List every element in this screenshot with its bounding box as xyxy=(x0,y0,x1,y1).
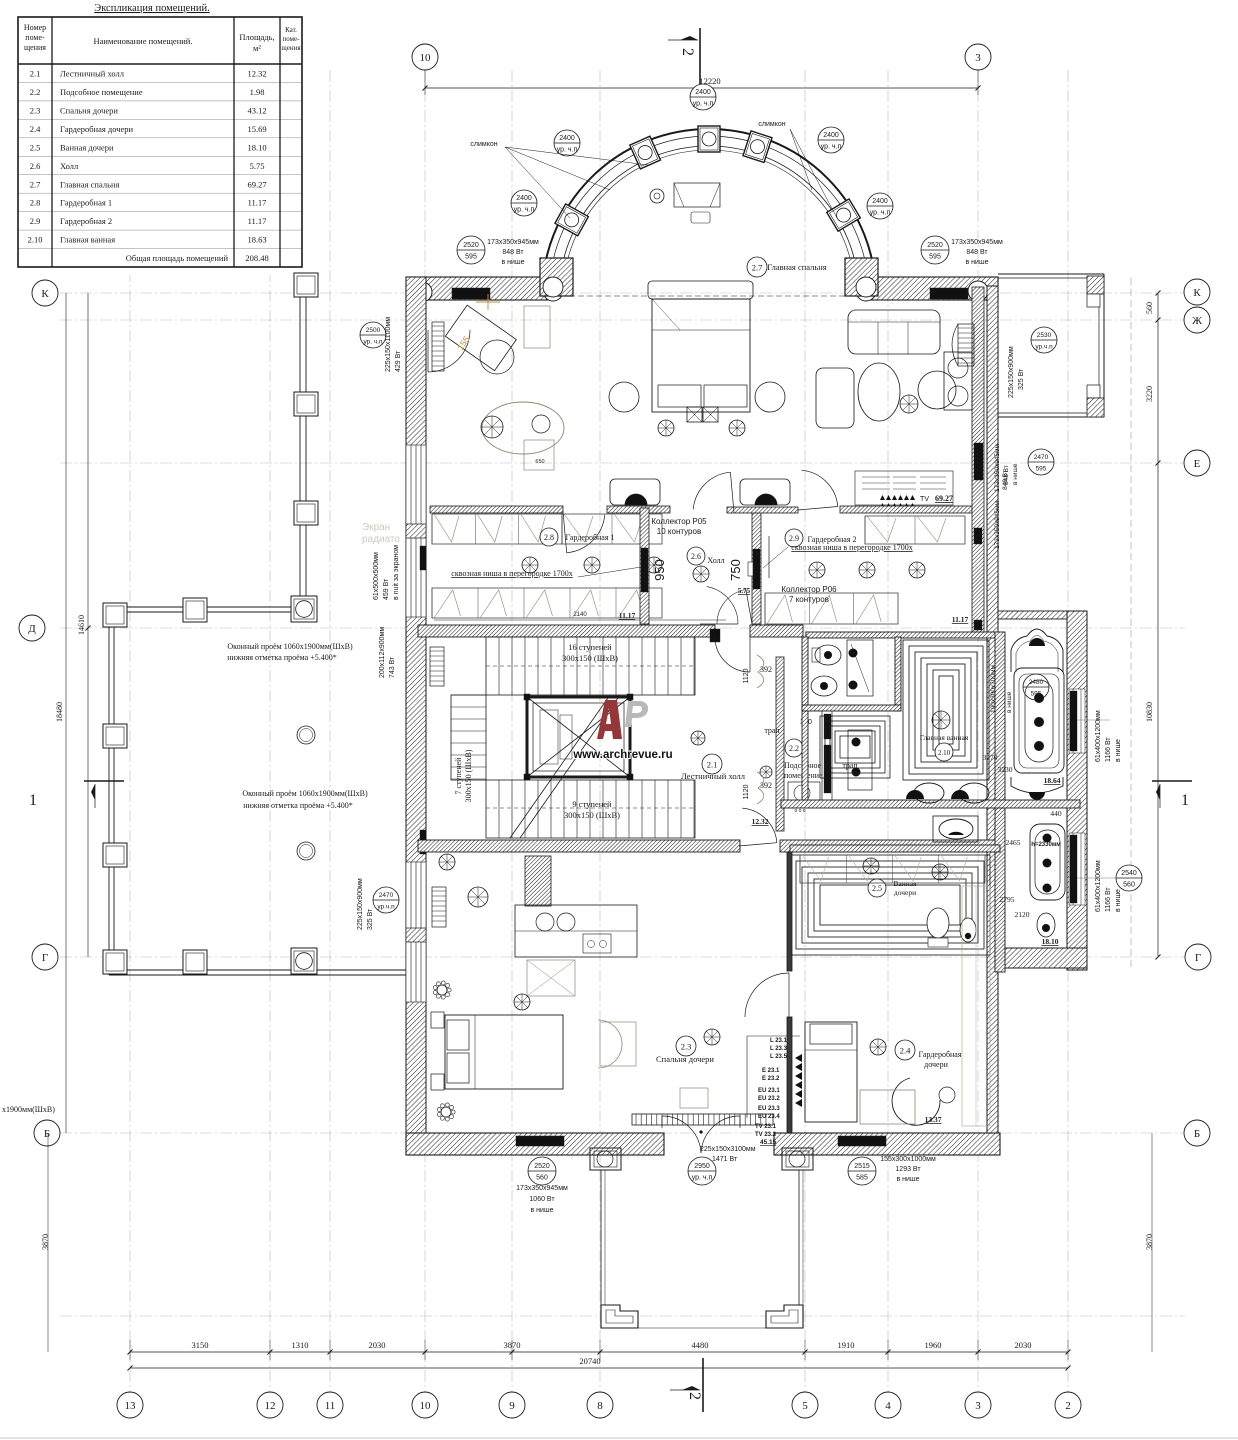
svg-text:ур.ч.п: ур.ч.п xyxy=(377,904,395,911)
svg-text:16 ступеней: 16 ступеней xyxy=(568,642,612,652)
svg-text:9: 9 xyxy=(509,1400,515,1412)
svg-text:173x350x945мм: 173x350x945мм xyxy=(516,1185,568,1192)
svg-text:1960: 1960 xyxy=(925,1340,942,1350)
svg-text:12.32: 12.32 xyxy=(752,817,769,826)
svg-text:Холл: Холл xyxy=(707,556,724,565)
svg-text:в нише: в нише xyxy=(1006,691,1013,713)
svg-text:2.8: 2.8 xyxy=(30,198,41,208)
svg-text:2400: 2400 xyxy=(516,195,532,202)
svg-text:3870: 3870 xyxy=(41,1234,50,1250)
svg-text:2.2: 2.2 xyxy=(30,87,41,97)
svg-text:208.48: 208.48 xyxy=(245,253,268,263)
svg-text:61x400x1200мм: 61x400x1200мм xyxy=(1095,860,1102,912)
svg-text:ур. ч.п: ур. ч.п xyxy=(692,1175,713,1182)
svg-text:560: 560 xyxy=(1145,302,1154,314)
svg-text:трап: трап xyxy=(764,726,780,735)
svg-text:2.5: 2.5 xyxy=(872,884,882,893)
svg-text:Лестничный холл: Лестничный холл xyxy=(681,771,746,781)
svg-text:18.10: 18.10 xyxy=(1042,937,1059,946)
svg-text:2.6: 2.6 xyxy=(30,161,41,171)
svg-text:Площадь,: Площадь, xyxy=(239,32,274,42)
svg-text:Коллектор Р05: Коллектор Р05 xyxy=(651,517,707,526)
svg-text:13: 13 xyxy=(125,1400,137,1412)
svg-text:10 контуров: 10 контуров xyxy=(657,527,701,536)
svg-text:848 Вт: 848 Вт xyxy=(1003,465,1010,485)
svg-text:7 ступеней: 7 ступеней xyxy=(454,757,463,795)
svg-text:560: 560 xyxy=(536,1175,548,1182)
svg-text:3870: 3870 xyxy=(1145,1234,1154,1250)
svg-text:ур. ч.п: ур. ч.п xyxy=(514,207,535,214)
svg-text:2400: 2400 xyxy=(872,198,888,205)
svg-text:325 Вт: 325 Вт xyxy=(1018,368,1025,390)
svg-text:EU 23.4: EU 23.4 xyxy=(758,1114,780,1120)
svg-text:69.27: 69.27 xyxy=(247,179,266,189)
svg-text:2465: 2465 xyxy=(1006,838,1021,847)
svg-text:К: К xyxy=(41,288,49,300)
svg-text:8: 8 xyxy=(597,1400,603,1412)
svg-text:18.64: 18.64 xyxy=(1044,776,1061,785)
svg-text:в нише: в нише xyxy=(966,259,989,266)
svg-text:848 Вт: 848 Вт xyxy=(966,249,988,256)
svg-text:173x350x945мм: 173x350x945мм xyxy=(994,443,1001,492)
svg-text:Общая площадь помещений: Общая площадь помещений xyxy=(126,253,229,263)
svg-text:61x500x500мм: 61x500x500мм xyxy=(373,552,380,600)
svg-text:EU 23.2: EU 23.2 xyxy=(758,1096,780,1102)
svg-text:дочери: дочери xyxy=(894,888,916,897)
svg-text:11.17: 11.17 xyxy=(952,615,969,624)
svg-text:Главная ванная: Главная ванная xyxy=(60,235,115,245)
svg-text:Главная ванная: Главная ванная xyxy=(920,733,969,742)
svg-text:11.17: 11.17 xyxy=(248,198,267,208)
svg-text:в нише: в нише xyxy=(502,259,525,266)
svg-text:Лестничный холл: Лестничный холл xyxy=(60,69,125,79)
svg-text:2.9: 2.9 xyxy=(789,534,799,543)
svg-text:429 Вт: 429 Вт xyxy=(395,350,402,372)
svg-text:нижняя отметка проёма +5.400*: нижняя отметка проёма +5.400* xyxy=(227,653,336,662)
svg-text:43.12: 43.12 xyxy=(247,105,266,115)
svg-text:1910: 1910 xyxy=(838,1340,855,1350)
svg-text:E 23.1: E 23.1 xyxy=(762,1068,780,1074)
svg-text:1310: 1310 xyxy=(292,1340,309,1350)
svg-text:11: 11 xyxy=(325,1400,336,1412)
svg-text:2500: 2500 xyxy=(366,327,381,334)
svg-text:1.98: 1.98 xyxy=(250,87,265,97)
svg-text:848 Вт: 848 Вт xyxy=(502,249,524,256)
svg-text:459 Вт: 459 Вт xyxy=(383,578,390,600)
svg-text:585: 585 xyxy=(856,1175,868,1182)
svg-text:225x150x900мм: 225x150x900мм xyxy=(357,878,364,930)
svg-text:2030: 2030 xyxy=(369,1340,386,1350)
svg-text:Экран: Экран xyxy=(362,522,390,533)
svg-text:трап: трап xyxy=(842,761,858,770)
svg-text:2400: 2400 xyxy=(823,132,839,139)
svg-text:18.63: 18.63 xyxy=(247,235,266,245)
svg-text:в нише: в нише xyxy=(1012,463,1019,485)
svg-text:Коллектор Р06: Коллектор Р06 xyxy=(781,585,837,594)
svg-text:1060 Вт: 1060 Вт xyxy=(529,1196,555,1203)
svg-text:61x400x1200мм: 61x400x1200мм xyxy=(1095,710,1102,762)
svg-text:E 23.2: E 23.2 xyxy=(762,1076,780,1082)
svg-text:300x150 (ШхВ): 300x150 (ШхВ) xyxy=(564,810,620,820)
svg-text:EU 23.3: EU 23.3 xyxy=(758,1106,780,1112)
svg-text:18480: 18480 xyxy=(55,702,64,722)
svg-text:10: 10 xyxy=(420,1400,432,1412)
svg-text:12.32: 12.32 xyxy=(247,69,266,79)
svg-text:3: 3 xyxy=(975,1400,981,1412)
svg-text:2.9: 2.9 xyxy=(30,216,41,226)
svg-text:2470: 2470 xyxy=(379,892,394,899)
svg-text:2540: 2540 xyxy=(1121,870,1137,877)
svg-text:м²: м² xyxy=(253,43,261,53)
svg-text:в нише: в нише xyxy=(531,1207,554,1214)
svg-text:173x350x945мм: 173x350x945мм xyxy=(994,500,1001,549)
svg-text:2.3: 2.3 xyxy=(681,1042,692,1052)
svg-text:Ж: Ж xyxy=(1192,315,1202,327)
svg-text:Спальня дочери: Спальня дочери xyxy=(656,1054,714,1064)
svg-text:2520: 2520 xyxy=(534,1163,550,1170)
svg-text:155x300x1000мм: 155x300x1000мм xyxy=(880,1156,936,1163)
svg-text:5: 5 xyxy=(802,1400,808,1412)
svg-text:слимкон: слимкон xyxy=(758,121,785,128)
svg-text:2.2: 2.2 xyxy=(789,744,799,753)
svg-text:1293 Вт: 1293 Вт xyxy=(895,1166,921,1173)
svg-text:3: 3 xyxy=(975,52,981,64)
svg-text:щения: щения xyxy=(24,43,46,52)
svg-text:300x150 (ШхВ): 300x150 (ШхВ) xyxy=(464,749,473,802)
svg-text:Гардеробная 1: Гардеробная 1 xyxy=(60,198,112,208)
svg-text:392: 392 xyxy=(760,665,772,674)
svg-text:www.archrevue.ru: www.archrevue.ru xyxy=(572,749,672,761)
svg-text:Ванная дочери: Ванная дочери xyxy=(60,142,114,152)
svg-text:2470: 2470 xyxy=(1034,454,1049,461)
svg-text:Наименование помещений.: Наименование помещений. xyxy=(94,36,193,46)
svg-text:595: 595 xyxy=(929,254,941,261)
svg-text:12: 12 xyxy=(265,1400,276,1412)
svg-text:2.3: 2.3 xyxy=(30,105,41,115)
svg-text:Кат.: Кат. xyxy=(285,26,297,34)
svg-text:2520: 2520 xyxy=(927,242,943,249)
svg-text:20740: 20740 xyxy=(579,1356,600,1366)
svg-text:Б: Б xyxy=(1194,1128,1200,1140)
svg-text:173x350x945мм: 173x350x945мм xyxy=(487,239,539,246)
svg-text:в нише: в нише xyxy=(1115,739,1122,762)
svg-text:2: 2 xyxy=(679,48,696,56)
svg-text:Б: Б xyxy=(44,1128,50,1140)
svg-text:Холл: Холл xyxy=(60,161,79,171)
svg-text:3150: 3150 xyxy=(192,1340,209,1350)
svg-text:200x112x900мм: 200x112x900мм xyxy=(379,627,386,678)
svg-text:13.37: 13.37 xyxy=(925,1115,942,1124)
svg-text:Подсобное помещение: Подсобное помещение xyxy=(60,87,143,97)
svg-text:2400: 2400 xyxy=(559,135,575,142)
svg-text:в нише: в нише xyxy=(897,1176,920,1183)
svg-text:11.17: 11.17 xyxy=(248,216,267,226)
svg-text:2120: 2120 xyxy=(1015,910,1030,919)
svg-text:Г: Г xyxy=(1195,952,1201,964)
svg-text:11.17: 11.17 xyxy=(619,611,636,620)
svg-text:440: 440 xyxy=(1050,809,1062,818)
svg-text:поме-: поме- xyxy=(283,35,301,43)
svg-text:Главная спальня: Главная спальня xyxy=(767,262,826,272)
svg-text:радиато: радиато xyxy=(362,534,400,545)
svg-text:45.15: 45.15 xyxy=(760,1139,777,1146)
svg-text:1166 Вт: 1166 Вт xyxy=(1105,887,1112,912)
svg-text:2030: 2030 xyxy=(1015,1340,1032,1350)
svg-text:1: 1 xyxy=(29,792,37,809)
svg-text:3270: 3270 xyxy=(983,753,998,762)
svg-text:225x150x1100мм: 225x150x1100мм xyxy=(385,317,392,372)
svg-text:2.7: 2.7 xyxy=(30,179,41,189)
svg-text:TV: TV xyxy=(920,496,929,503)
svg-text:1120: 1120 xyxy=(743,784,750,799)
svg-text:2: 2 xyxy=(1065,1400,1071,1412)
svg-text:69.27: 69.27 xyxy=(935,494,953,503)
svg-text:Гардеробная: Гардеробная xyxy=(918,1050,961,1059)
svg-text:Номер: Номер xyxy=(24,23,46,32)
svg-text:ур. ч.п: ур. ч.п xyxy=(693,101,714,108)
svg-text:2950: 2950 xyxy=(694,1163,710,1170)
svg-text:Е: Е xyxy=(1194,458,1201,470)
svg-text:Главная спальня: Главная спальня xyxy=(60,179,119,189)
svg-text:173x350x945мм: 173x350x945мм xyxy=(951,239,1003,246)
svg-text:поме-: поме- xyxy=(25,33,45,42)
svg-text:ур.ч.п: ур.ч.п xyxy=(1035,344,1053,351)
svg-text:Гардеробная 2: Гардеробная 2 xyxy=(60,216,112,226)
svg-text:7 контуров: 7 контуров xyxy=(789,595,829,604)
svg-text:EU 23.1: EU 23.1 xyxy=(758,1088,780,1094)
svg-text:щения: щения xyxy=(281,44,301,52)
svg-text:2.4: 2.4 xyxy=(900,1046,911,1056)
svg-text:Экспликация помещений.: Экспликация помещений. xyxy=(94,3,209,14)
svg-text:10830: 10830 xyxy=(1145,702,1154,722)
svg-text:в нише: в нише xyxy=(1115,889,1122,912)
svg-text:18.10: 18.10 xyxy=(247,142,266,152)
svg-text:225x150x3100мм: 225x150x3100мм xyxy=(700,1146,756,1153)
svg-text:сквозная ниша в перегородке 17: сквозная ниша в перегородке 1700х xyxy=(451,569,572,578)
svg-text:4: 4 xyxy=(885,1400,891,1412)
svg-text:4480: 4480 xyxy=(692,1340,709,1350)
svg-text:9 ступеней: 9 ступеней xyxy=(572,799,612,809)
svg-text:392: 392 xyxy=(760,781,772,790)
svg-text:2.6: 2.6 xyxy=(691,552,701,561)
svg-text:2: 2 xyxy=(686,1392,703,1400)
svg-text:300x150 (ШхВ): 300x150 (ШхВ) xyxy=(562,653,618,663)
svg-text:650: 650 xyxy=(535,459,544,465)
svg-text:14610: 14610 xyxy=(77,615,86,635)
svg-text:ур. ч.п: ур. ч.п xyxy=(870,210,891,217)
svg-text:ур. ч.п: ур. ч.п xyxy=(821,144,842,151)
svg-text:2.1: 2.1 xyxy=(707,760,718,770)
svg-text:2515: 2515 xyxy=(854,1163,870,1170)
svg-text:2400: 2400 xyxy=(695,89,711,96)
svg-text:3230: 3230 xyxy=(998,765,1013,774)
svg-text:595: 595 xyxy=(1036,466,1047,473)
svg-text:1166 Вт: 1166 Вт xyxy=(1105,737,1112,762)
svg-text:3220: 3220 xyxy=(1145,386,1154,402)
svg-text:Д: Д xyxy=(28,623,36,635)
svg-text:325 Вт: 325 Вт xyxy=(367,908,374,930)
svg-text:2.5: 2.5 xyxy=(30,142,41,152)
svg-text:2795: 2795 xyxy=(1000,895,1015,904)
svg-text:слимкон: слимкон xyxy=(470,141,497,148)
svg-text:в nuit за экраном: в nuit за экраном xyxy=(393,545,400,600)
svg-text:2.1: 2.1 xyxy=(30,69,41,79)
svg-text:дочери: дочери xyxy=(924,1060,948,1069)
svg-text:Оконный проём 1060x1900мм(ШхВ): Оконный проём 1060x1900мм(ШхВ) xyxy=(242,789,368,798)
svg-text:Г: Г xyxy=(42,952,48,964)
svg-text:225x150x900мм: 225x150x900мм xyxy=(1008,346,1015,398)
svg-text:1: 1 xyxy=(1181,792,1189,809)
svg-text:Гардеробная 1: Гардеробная 1 xyxy=(565,533,614,542)
svg-text:о о о: о о о xyxy=(794,808,805,814)
svg-text:TV 23.2: TV 23.2 xyxy=(755,1132,777,1138)
svg-text:5.75: 5.75 xyxy=(250,161,265,171)
svg-text:2.7: 2.7 xyxy=(752,263,763,273)
svg-text:750: 750 xyxy=(728,559,743,581)
svg-text:Гардеробная дочери: Гардеробная дочери xyxy=(60,124,134,134)
svg-text:10: 10 xyxy=(420,52,432,64)
svg-text:1120: 1120 xyxy=(743,668,750,683)
svg-text:950: 950 xyxy=(652,559,667,581)
svg-text:ур. ч.п: ур. ч.п xyxy=(363,339,383,346)
svg-text:2.4: 2.4 xyxy=(30,124,41,134)
svg-text:2.8: 2.8 xyxy=(544,533,554,542)
svg-text:15.69: 15.69 xyxy=(247,124,266,134)
svg-text:2520: 2520 xyxy=(463,242,479,249)
svg-text:560: 560 xyxy=(1123,882,1135,889)
svg-text:2.10: 2.10 xyxy=(28,235,43,245)
svg-text:2530: 2530 xyxy=(1037,332,1052,339)
svg-text:Спальня дочери: Спальня дочери xyxy=(60,105,118,115)
svg-text:h=2330мм: h=2330мм xyxy=(1031,842,1061,848)
svg-text:К: К xyxy=(1193,287,1201,299)
svg-text:Оконный проём 1060x1900мм(ШхВ): Оконный проём 1060x1900мм(ШхВ) xyxy=(227,642,353,651)
svg-text:743 Вт: 743 Вт xyxy=(389,656,396,678)
svg-text:ур. ч.п: ур. ч.п xyxy=(557,147,578,154)
svg-text:х1900мм(ШхВ): х1900мм(ШхВ) xyxy=(2,1105,55,1114)
svg-text:нижняя отметка проёма +5.400*: нижняя отметка проёма +5.400* xyxy=(243,801,352,810)
svg-text:1471 Вт: 1471 Вт xyxy=(712,1156,738,1163)
svg-text:2.10: 2.10 xyxy=(938,749,951,757)
svg-text:595: 595 xyxy=(465,254,477,261)
svg-text:3870: 3870 xyxy=(504,1340,521,1350)
